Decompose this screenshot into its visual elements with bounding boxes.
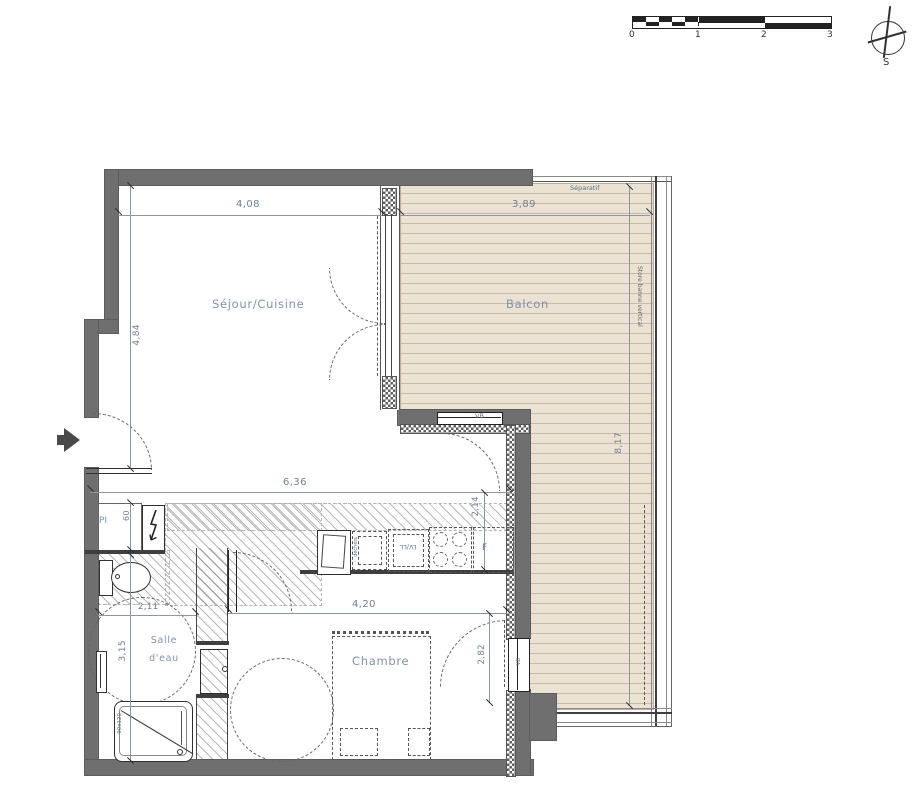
- entry-arrow-icon: [64, 428, 80, 452]
- dimension-hall-width: 6,36: [283, 477, 307, 488]
- dimension-line-sejour-height: [130, 186, 131, 469]
- stove-burner: [433, 532, 448, 547]
- entry-door-swing-arc: [93, 413, 152, 470]
- dimension-placard: 60: [122, 510, 131, 521]
- scale-label-1: 1: [695, 30, 701, 40]
- dimension-line-salle-height: [130, 555, 131, 761]
- scale-label-2: 2: [761, 30, 767, 40]
- floor-plan-canvas: Séparatif Store banne vertical Balcon 8,…: [0, 0, 918, 800]
- salle-line2: d'eau: [149, 653, 179, 664]
- salle-line1: Salle: [151, 635, 177, 646]
- wall-top: [105, 170, 532, 185]
- placard-label: PI: [99, 516, 107, 526]
- wall-bottom: [85, 760, 533, 775]
- sejour-window-glazing: [385, 214, 386, 376]
- balcony-dashed-separator: [644, 505, 645, 705]
- door-knob: [222, 666, 228, 672]
- dishwasher-label: LV/LL: [392, 543, 424, 551]
- washbasin: [96, 651, 107, 693]
- stove-burner: [433, 552, 448, 567]
- dimension-salle-height: 3,15: [118, 640, 128, 662]
- scale-bar-segment: [699, 17, 765, 23]
- sejour-window-frame: [382, 188, 397, 216]
- waste-unit-inner: [358, 536, 382, 565]
- shower-drain: [177, 749, 183, 755]
- dimension-line-hall-width: [90, 492, 510, 493]
- vb-label-chambre: VB: [516, 658, 522, 666]
- shower-size-label: 90x120: [117, 713, 123, 734]
- kitchen-window-mullion: [437, 417, 501, 418]
- dimension-salle-width: 2,11: [138, 602, 159, 612]
- washbasin-line: [100, 654, 101, 688]
- balcony-railing: [655, 176, 657, 726]
- dimension-kitchen-depth: 2,14: [471, 496, 481, 517]
- toilet-dot: [115, 574, 120, 579]
- bed-pillow: [340, 728, 378, 756]
- room-label-balcon: Balcon: [506, 297, 549, 311]
- dimension-line-balcon-width: [400, 215, 650, 216]
- dimension-line-kitchen-depth: [484, 493, 485, 570]
- dimension-sejour-width: 4,08: [236, 199, 260, 210]
- dimension-sejour-height: 4,84: [132, 324, 142, 346]
- stove-burner: [452, 552, 467, 567]
- scale-label-3: 3: [827, 30, 833, 40]
- wall-left-mid: [85, 320, 98, 417]
- scale-bar: [632, 16, 832, 29]
- balcony-railing: [651, 176, 652, 726]
- scale-label-0: 0: [629, 30, 635, 40]
- room-label-chambre: Chambre: [352, 654, 409, 668]
- checker-strip-right: [506, 690, 516, 777]
- shower-glass: [181, 711, 182, 745]
- bed-pillow: [408, 728, 430, 756]
- entry-arrow-stem: [57, 435, 65, 445]
- door-jamb: [196, 641, 229, 645]
- lightning-icon: [145, 507, 162, 547]
- dimension-line-sejour-width: [118, 215, 382, 216]
- separatif-label: Séparatif: [570, 184, 600, 192]
- sejour-window-frame: [382, 376, 397, 409]
- kitchen-sink: [317, 530, 351, 575]
- stove-burner: [452, 532, 467, 547]
- scale-bar-segment: [765, 23, 831, 29]
- vb-label-kitchen: VB: [475, 412, 484, 420]
- dimension-chambre-width: 4,20: [352, 599, 376, 610]
- scale-bar-segment: [633, 22, 699, 27]
- dimension-line-chambre-height: [489, 614, 490, 703]
- wall-right-lower: [514, 690, 530, 775]
- shower-tray: [114, 701, 193, 762]
- room-label-sejour: Séjour/Cuisine: [212, 297, 304, 311]
- waste-label: déchets: [353, 537, 359, 557]
- placard: [98, 503, 142, 552]
- balcony-railing: [666, 176, 667, 726]
- balcony-railing: [671, 176, 672, 726]
- door-jamb: [196, 694, 229, 698]
- partition-under-placard: [85, 550, 165, 554]
- bed-blanket-edge: [332, 631, 429, 634]
- dimension-line-balcon-height: [629, 187, 630, 706]
- room-label-salle-eau: Salle d'eau: [138, 632, 190, 668]
- clearance-circle-bedroom: [230, 658, 334, 762]
- wall-right-upper: [514, 425, 530, 638]
- dimension-line-chambre-width: [228, 613, 507, 614]
- wall-left-upper: [105, 170, 118, 333]
- sejour-window-glazing: [391, 214, 392, 376]
- electrical-panel: [142, 505, 165, 551]
- balcony-door-swing-arc: [329, 268, 385, 324]
- dimension-balcon-height: 8,17: [614, 432, 624, 454]
- balcony-door-swing-arc: [329, 324, 385, 380]
- sink-basin: [321, 534, 346, 569]
- fridge-zone: [473, 527, 514, 573]
- dimension-chambre-height: 2,82: [477, 644, 487, 665]
- wall-balcony-pillar: [530, 694, 556, 740]
- dimension-line-salle-width: [98, 615, 196, 616]
- compass-south-label: S: [883, 57, 889, 68]
- kitchen-window: [437, 412, 503, 425]
- dimension-balcon-width: 3,89: [512, 199, 536, 210]
- store-banne-label: Store banne vertical: [636, 266, 643, 327]
